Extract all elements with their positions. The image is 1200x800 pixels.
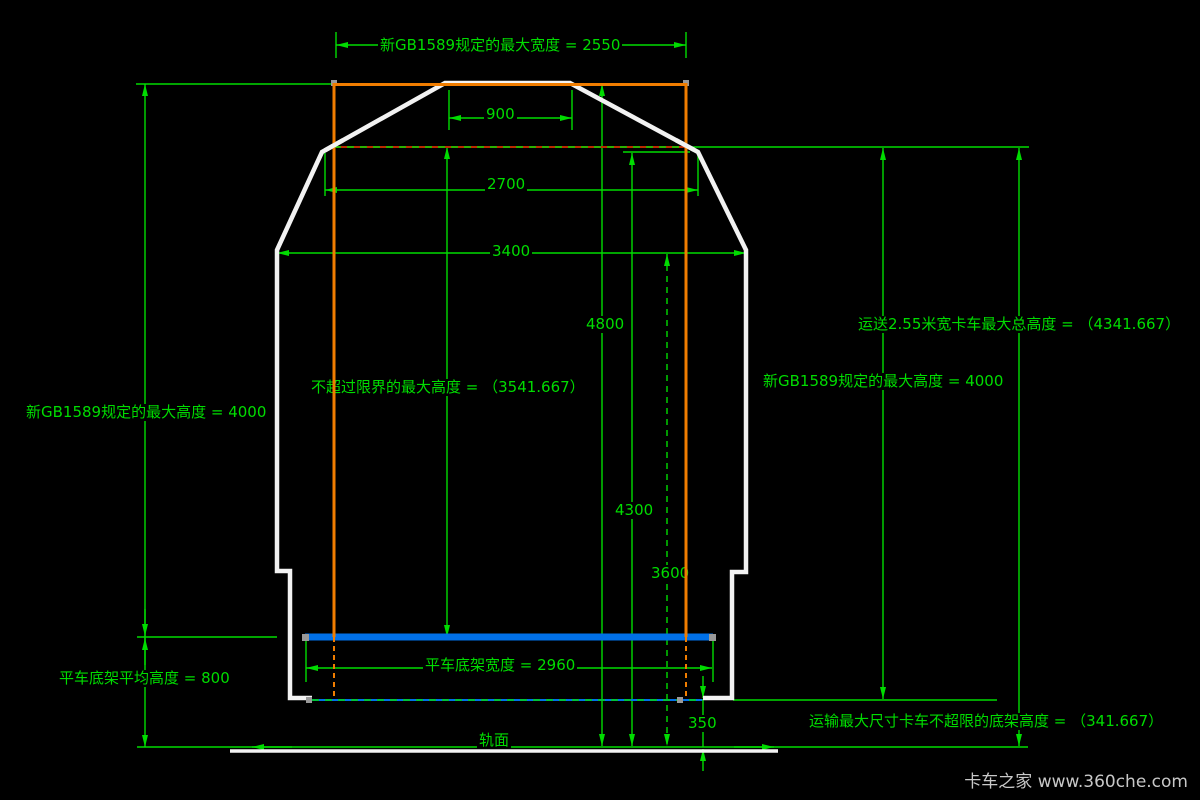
- label-truck-total-height: 运送2.55米宽卡车最大总高度 = （4341.667）: [856, 316, 1182, 333]
- label-chassis-height: 运输最大尺寸卡车不超限的底架高度 = （341.667）: [807, 713, 1165, 730]
- grip-chassis-right: [677, 697, 683, 703]
- label-max-width: 新GB1589规定的最大宽度 = 2550: [378, 37, 622, 54]
- grip-deck-right: [709, 634, 716, 641]
- label-dim-3600: 3600: [649, 565, 691, 582]
- label-max-height-left: 新GB1589规定的最大高度 = 4000: [24, 404, 268, 421]
- grip-deck-left: [302, 634, 309, 641]
- label-dim-4300: 4300: [613, 502, 655, 519]
- label-deck-width: 平车底架宽度 = 2960: [423, 657, 577, 674]
- label-limit-height: 不超过限界的最大高度 = （3541.667）: [309, 379, 587, 396]
- label-max-height-right: 新GB1589规定的最大高度 = 4000: [761, 373, 1005, 390]
- grip-orange-top-left: [331, 80, 337, 86]
- label-dim-4800: 4800: [584, 316, 626, 333]
- label-rail-surface: 轨面: [477, 732, 511, 749]
- grip-orange-top-right: [683, 80, 689, 86]
- label-dim-2700: 2700: [485, 176, 527, 193]
- label-dim-350: 350: [686, 715, 719, 732]
- grip-chassis-left: [306, 697, 312, 703]
- cad-canvas: 新GB1589规定的最大宽度 = 2550 900 2700 3400 4800…: [0, 0, 1200, 800]
- label-dim-3400: 3400: [490, 243, 532, 260]
- label-dim-900: 900: [484, 106, 517, 123]
- label-deck-height: 平车底架平均高度 = 800: [57, 670, 232, 687]
- watermark: 卡车之家 www.360che.com: [962, 774, 1190, 791]
